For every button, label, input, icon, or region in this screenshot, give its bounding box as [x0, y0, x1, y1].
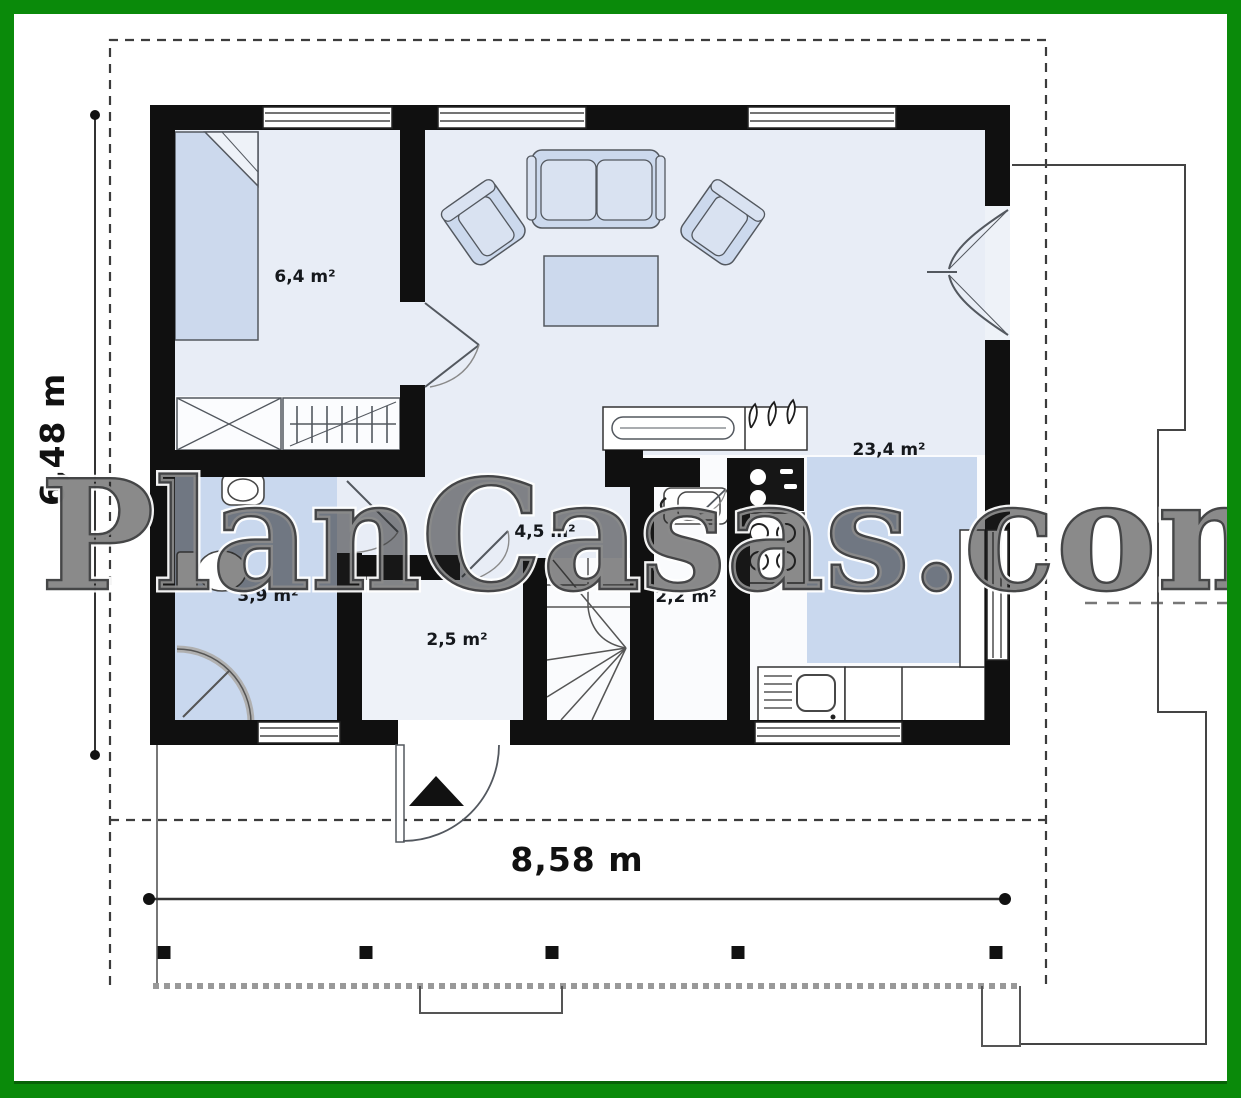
porch-step	[420, 986, 562, 1013]
window-kitchen-right	[987, 530, 1008, 660]
vestibule-floor	[362, 580, 523, 720]
vestibule-area-label: 2,5 m²	[407, 630, 507, 650]
window-bathroom-bottom	[258, 722, 340, 743]
washbasin	[222, 473, 264, 505]
floor-plan-page: 6,4 m² 23,4 m² 4,5 m² 3,9 m² 2,5 m² 2,2 …	[0, 0, 1241, 1098]
window-living-top-left	[438, 107, 586, 128]
porch-post	[990, 946, 1003, 959]
floor-plan-drawing	[0, 0, 1241, 1098]
coffee-table	[544, 256, 658, 326]
side-terrace-outline	[1012, 165, 1206, 1044]
wc-area-label: 2,2 m²	[636, 587, 736, 607]
kitchen-sink-unit	[758, 667, 845, 723]
living-area-label: 23,4 m²	[839, 440, 939, 460]
porch-post	[732, 946, 745, 959]
window-bedroom-top	[263, 107, 392, 128]
toilet	[177, 551, 246, 591]
porch-post	[360, 946, 373, 959]
bed	[175, 132, 258, 340]
bedroom-area-label: 6,4 m²	[255, 267, 355, 287]
dining-floor	[807, 457, 977, 663]
window-living-top-right	[748, 107, 896, 128]
wardrobe	[177, 398, 400, 450]
width-dimension-label: 8,58 m	[477, 840, 677, 879]
window-kitchen-bottom	[755, 722, 902, 743]
porch-post	[546, 946, 559, 959]
porch-post	[158, 946, 171, 959]
stove	[742, 458, 804, 583]
entrance-arrow-icon	[409, 776, 464, 806]
hall-area-label: 4,5 m²	[495, 522, 595, 542]
front-porch	[153, 745, 1022, 1046]
sofa	[527, 150, 665, 228]
height-dimension-label: 6,48 m	[33, 356, 72, 506]
bathroom-area-label: 3,9 m²	[218, 586, 318, 606]
entrance-door	[396, 745, 499, 842]
porch-step	[982, 986, 1020, 1046]
